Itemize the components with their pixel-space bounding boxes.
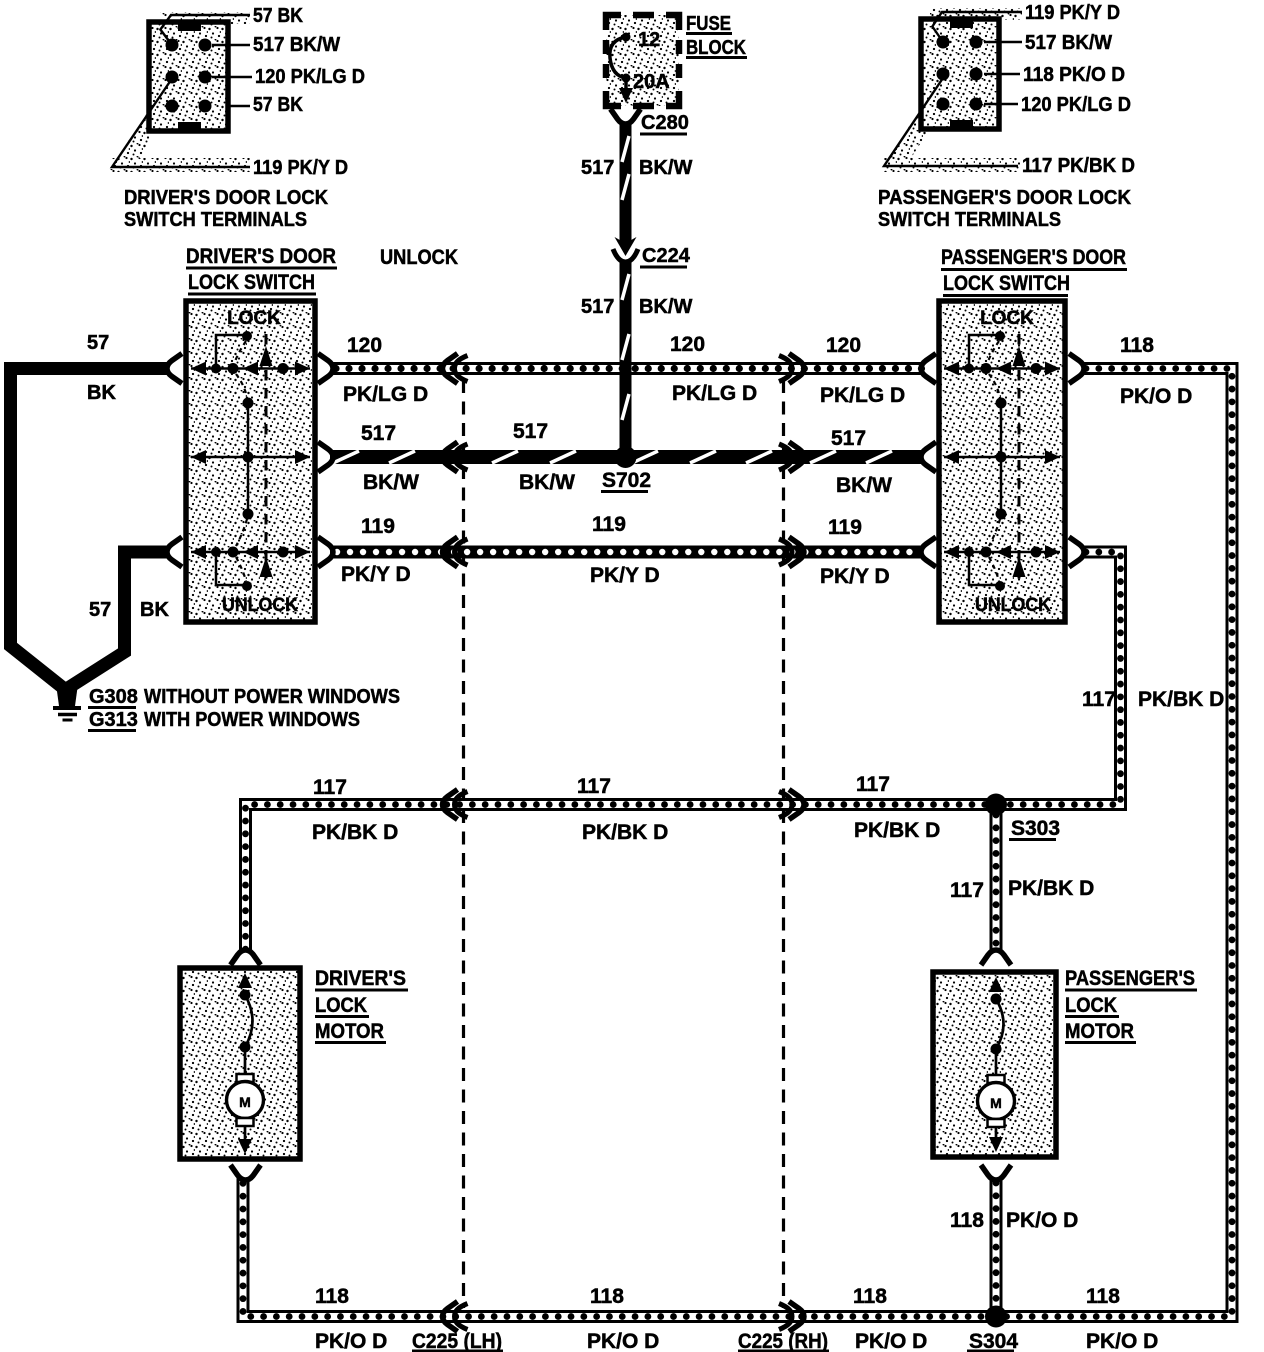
svg-text:PK/O D: PK/O D: [1120, 385, 1192, 408]
svg-text:120: 120: [347, 334, 382, 357]
svg-text:PASSENGER'S: PASSENGER'S: [1065, 967, 1195, 990]
svg-text:SWITCH TERMINALS: SWITCH TERMINALS: [124, 209, 307, 231]
svg-text:SWITCH TERMINALS: SWITCH TERMINALS: [878, 209, 1061, 231]
svg-text:517: 517: [831, 427, 866, 450]
svg-text:M: M: [990, 1095, 1002, 1111]
svg-text:BLOCK: BLOCK: [686, 37, 746, 59]
svg-text:PK/Y D: PK/Y D: [820, 565, 890, 588]
svg-text:BK: BK: [87, 382, 116, 404]
svg-text:PK/O D: PK/O D: [1006, 1209, 1078, 1232]
svg-text:WITH POWER WINDOWS: WITH POWER WINDOWS: [144, 709, 360, 731]
svg-text:S303: S303: [1011, 817, 1060, 840]
svg-text:57: 57: [87, 332, 109, 354]
svg-text:117: 117: [856, 773, 890, 796]
svg-text:117: 117: [1082, 688, 1116, 711]
svg-text:UNLOCK: UNLOCK: [380, 246, 458, 269]
svg-text:G313: G313: [89, 709, 138, 731]
svg-text:117: 117: [950, 879, 984, 902]
svg-text:DRIVER'S DOOR LOCK: DRIVER'S DOOR LOCK: [124, 187, 329, 209]
svg-text:C225 (RH): C225 (RH): [738, 1330, 828, 1352]
svg-text:MOTOR: MOTOR: [315, 1020, 384, 1043]
svg-text:S304: S304: [969, 1330, 1018, 1352]
svg-text:LOCK SWITCH: LOCK SWITCH: [943, 272, 1070, 295]
svg-text:S702: S702: [602, 469, 651, 492]
svg-text:118: 118: [1120, 334, 1154, 357]
svg-text:C280: C280: [641, 112, 689, 134]
svg-text:20A: 20A: [633, 71, 670, 93]
svg-text:PK/BK D: PK/BK D: [854, 819, 940, 842]
svg-text:PK/O D: PK/O D: [855, 1330, 927, 1352]
svg-text:PASSENGER'S DOOR: PASSENGER'S DOOR: [941, 246, 1126, 269]
svg-text:UNLOCK: UNLOCK: [222, 595, 298, 616]
svg-text:PK/BK D: PK/BK D: [1008, 877, 1094, 900]
svg-text:BK/W: BK/W: [363, 471, 419, 494]
svg-text:517: 517: [513, 420, 548, 443]
svg-text:BK/W: BK/W: [836, 474, 892, 497]
svg-text:BK/W: BK/W: [639, 157, 692, 179]
svg-text:PK/O D: PK/O D: [1086, 1330, 1158, 1352]
svg-text:DRIVER'S: DRIVER'S: [315, 967, 406, 990]
svg-text:UNLOCK: UNLOCK: [975, 595, 1051, 616]
svg-text:57 BK: 57 BK: [253, 5, 303, 27]
svg-text:PK/BK D: PK/BK D: [312, 821, 398, 844]
svg-text:57 BK: 57 BK: [253, 94, 303, 116]
svg-text:517 BK/W: 517 BK/W: [1025, 32, 1112, 54]
svg-text:118 PK/O D: 118 PK/O D: [1023, 64, 1125, 86]
svg-text:PK/Y D: PK/Y D: [341, 563, 411, 586]
svg-text:117: 117: [577, 775, 611, 798]
svg-text:517 BK/W: 517 BK/W: [253, 34, 340, 56]
svg-text:120: 120: [670, 333, 705, 356]
svg-text:PK/Y D: PK/Y D: [590, 564, 660, 587]
svg-text:118: 118: [1086, 1285, 1120, 1308]
svg-text:LOCK: LOCK: [227, 308, 281, 329]
svg-text:12: 12: [638, 29, 660, 51]
svg-text:118: 118: [950, 1209, 984, 1232]
svg-text:LOCK: LOCK: [1065, 994, 1117, 1017]
svg-text:C224: C224: [642, 245, 691, 267]
svg-text:LOCK SWITCH: LOCK SWITCH: [188, 271, 315, 294]
svg-text:PK/BK D: PK/BK D: [1138, 688, 1224, 711]
svg-text:118: 118: [853, 1285, 887, 1308]
svg-text:118: 118: [315, 1285, 349, 1308]
svg-text:117: 117: [313, 776, 347, 799]
svg-text:517: 517: [361, 422, 396, 445]
svg-text:PK/BK D: PK/BK D: [582, 821, 668, 844]
svg-text:MOTOR: MOTOR: [1065, 1020, 1134, 1043]
svg-text:120 PK/LG D: 120 PK/LG D: [255, 66, 365, 88]
svg-text:PK/LG D: PK/LG D: [672, 382, 757, 405]
svg-text:PK/LG D: PK/LG D: [820, 384, 905, 407]
svg-text:DRIVER'S DOOR: DRIVER'S DOOR: [186, 245, 336, 268]
svg-text:LOCK: LOCK: [315, 994, 367, 1017]
svg-text:PK/O D: PK/O D: [587, 1330, 659, 1352]
svg-text:G308: G308: [89, 686, 138, 708]
svg-text:517: 517: [581, 296, 614, 318]
svg-text:C225 (LH): C225 (LH): [412, 1330, 502, 1352]
svg-text:WITHOUT POWER WINDOWS: WITHOUT POWER WINDOWS: [144, 686, 400, 708]
svg-text:118: 118: [590, 1285, 624, 1308]
svg-text:BK/W: BK/W: [639, 296, 692, 318]
svg-text:FUSE: FUSE: [686, 13, 731, 35]
svg-text:M: M: [239, 1094, 251, 1110]
svg-text:BK/W: BK/W: [519, 471, 575, 494]
svg-text:517: 517: [581, 157, 614, 179]
svg-text:120: 120: [826, 334, 861, 357]
svg-text:120 PK/LG D: 120 PK/LG D: [1021, 94, 1131, 116]
svg-text:119: 119: [592, 513, 626, 536]
svg-text:BK: BK: [140, 599, 169, 621]
svg-text:119: 119: [361, 515, 395, 538]
svg-text:119 PK/Y D: 119 PK/Y D: [1025, 2, 1120, 24]
svg-text:LOCK: LOCK: [980, 308, 1034, 329]
svg-text:PASSENGER'S DOOR LOCK: PASSENGER'S DOOR LOCK: [878, 187, 1132, 209]
svg-text:PK/LG D: PK/LG D: [343, 383, 428, 406]
svg-text:119: 119: [828, 516, 862, 539]
svg-text:PK/O D: PK/O D: [315, 1330, 387, 1352]
svg-text:57: 57: [89, 599, 111, 621]
svg-text:119 PK/Y D: 119 PK/Y D: [253, 157, 348, 179]
svg-text:117 PK/BK D: 117 PK/BK D: [1022, 155, 1135, 177]
